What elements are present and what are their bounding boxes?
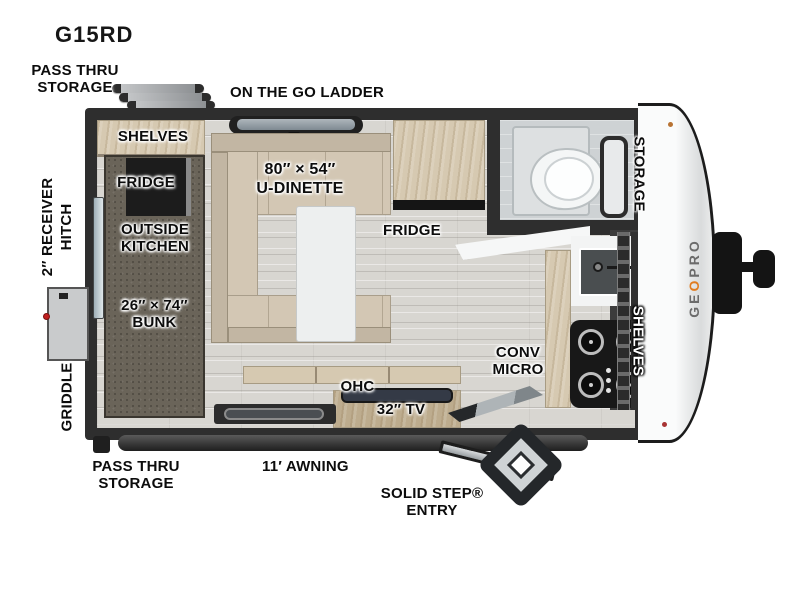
- entry-label-line2: ENTRY: [370, 502, 494, 519]
- pass-thru-bottom-line2: STORAGE: [85, 475, 187, 492]
- dinette-backrest-left: [211, 152, 228, 343]
- outside-kitchen-label: OUTSIDE KITCHEN: [105, 221, 205, 255]
- fridge-cabinet: [393, 120, 485, 208]
- dinette-backrest-top: [211, 133, 391, 152]
- outside-fridge-label: FRIDGE: [110, 174, 182, 191]
- front-shelves-label: SHELVES: [108, 128, 198, 145]
- dinette-label-line1: 80″ × 54″: [238, 160, 362, 179]
- awning-label: 11′ AWNING: [262, 458, 349, 475]
- pass-thru-storage-top-label: PASS THRU STORAGE: [24, 62, 126, 96]
- conv-micro-line1: CONV: [487, 344, 549, 361]
- conv-micro-line2: MICRO: [487, 361, 549, 378]
- bath-storage-door: [600, 136, 628, 218]
- roof-vent-glass: [237, 119, 355, 130]
- cap-marker-light-bottom: [662, 422, 667, 427]
- griddle-knob: [43, 313, 50, 320]
- cap-marker-light-top: [668, 122, 673, 127]
- propane-cover: [712, 232, 742, 314]
- brand-logo-ge: GE: [686, 292, 702, 318]
- hitch-ball-mount: [753, 250, 775, 288]
- kitchen-cabinet-strip: [545, 250, 571, 408]
- pass-thru-top-line2: STORAGE: [24, 79, 126, 96]
- entry-label: SOLID STEP® ENTRY: [370, 485, 494, 519]
- receiver-hitch-label: 2″ RECEIVER HITCH: [38, 178, 76, 277]
- bunk-label: 26″ × 74″ BUNK: [107, 297, 202, 331]
- ohc-label: OHC: [330, 378, 385, 395]
- toilet-seat: [543, 156, 595, 203]
- griddle-latch: [59, 293, 68, 299]
- dinette-table: [296, 206, 356, 342]
- entry-label-line1: SOLID STEP®: [370, 485, 494, 502]
- sink-drain: [593, 262, 603, 272]
- tv-label: 32″ TV: [366, 401, 436, 418]
- bunk-label-line2: BUNK: [107, 314, 202, 331]
- pass-thru-top-line1: PASS THRU: [24, 62, 126, 79]
- floorplan-canvas: G15RD PASS THRU STORAGE ON THE GO LADDER…: [0, 0, 800, 600]
- dinette-label: 80″ × 54″ U-DINETTE: [238, 160, 362, 198]
- front-cap: [638, 103, 716, 443]
- pass-thru-bottom-line1: PASS THRU: [85, 458, 187, 475]
- ladder-label: ON THE GO LADDER: [230, 84, 384, 101]
- receiver-hitch-line2: HITCH: [57, 178, 76, 277]
- outside-kitchen-line1: OUTSIDE: [105, 221, 205, 238]
- brand-logo: GEOPRO: [686, 238, 702, 317]
- receiver-hitch-line1: 2″ RECEIVER: [38, 178, 57, 277]
- bath-storage-label: STORAGE: [631, 136, 648, 211]
- kitchen-shelves-label: SHELVES: [630, 306, 647, 376]
- rear-window: [224, 408, 324, 420]
- brand-logo-pro: PRO: [686, 238, 702, 277]
- model-title: G15RD: [55, 22, 133, 48]
- griddle-label: GRIDDLE: [59, 363, 76, 432]
- side-window: [93, 197, 104, 319]
- bunk-label-line1: 26″ × 74″: [107, 297, 202, 314]
- outside-kitchen-line2: KITCHEN: [105, 238, 205, 255]
- fridge-label: FRIDGE: [383, 222, 441, 239]
- pantry-shelves: [617, 232, 630, 410]
- conv-micro-label: CONV MICRO: [487, 344, 549, 378]
- stabilizer-jack: [93, 436, 110, 453]
- fridge-cabinet-base: [393, 200, 485, 210]
- dinette-label-line2: U-DINETTE: [238, 179, 362, 198]
- pass-thru-storage-bottom-label: PASS THRU STORAGE: [85, 458, 187, 492]
- brand-logo-o: O: [686, 278, 702, 292]
- griddle-box: [47, 287, 89, 361]
